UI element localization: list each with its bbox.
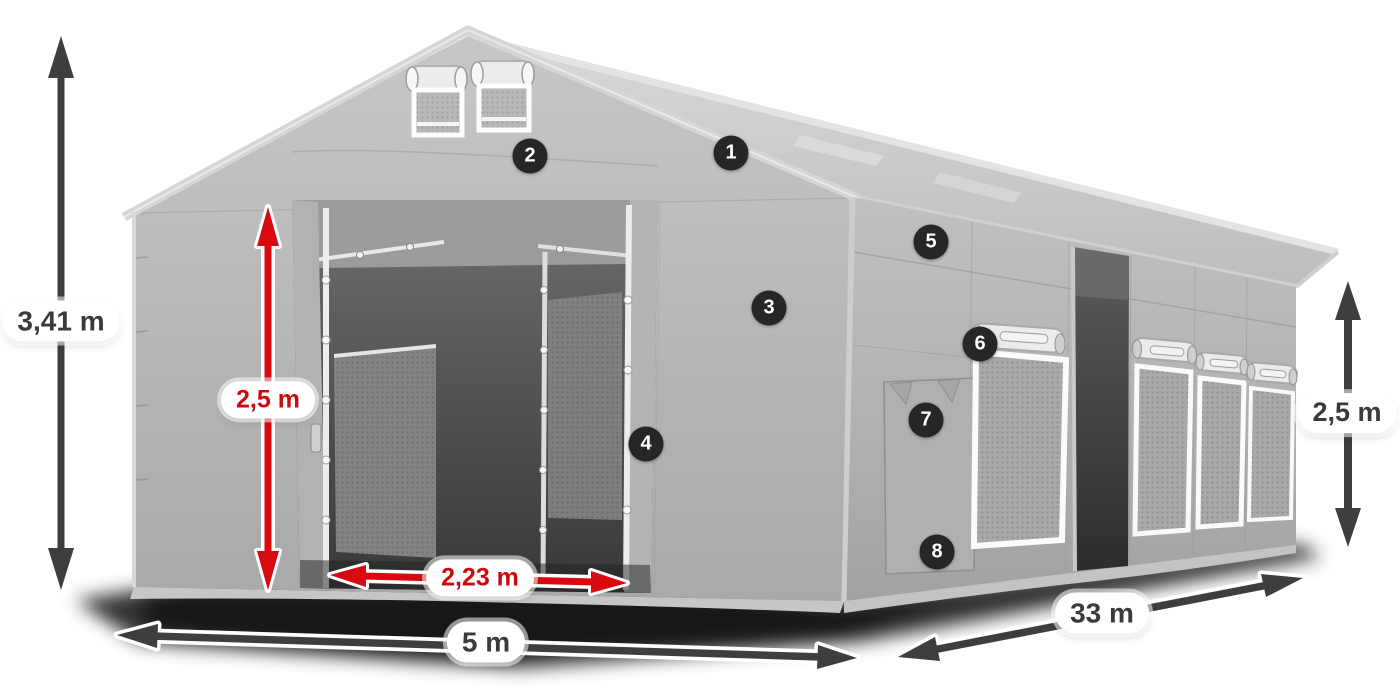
gable-vent-window [471, 61, 534, 130]
dimension-label-side-length: 33 m [1055, 593, 1149, 634]
marker-6: 6 [963, 327, 998, 362]
interior-mesh-panel [334, 346, 436, 558]
marker-1: 1 [714, 136, 749, 171]
gable-vent-window [406, 66, 467, 135]
interior-mesh-panel [548, 292, 622, 520]
dimension-label-side-wall-height: 2,5 m [1297, 393, 1396, 433]
marker-8: 8 [920, 535, 955, 570]
door-handle [311, 424, 321, 452]
dimension-label-door-width: 2,23 m [426, 559, 534, 596]
dimension-label-front-width: 5 m [447, 622, 525, 663]
marker-7: 7 [909, 403, 944, 438]
marker-3: 3 [752, 291, 787, 326]
interior-roof [292, 200, 658, 268]
tent-dimension-diagram: 3,41 m 2,5 m 2,23 m 5 m 33 m 2,5 m 1 2 3… [0, 0, 1400, 700]
marker-2: 2 [513, 139, 548, 174]
side-sliding-doorway [1073, 247, 1129, 571]
marker-5: 5 [914, 225, 949, 260]
dimension-label-total-height: 3,41 m [2, 301, 119, 342]
dimension-label-door-height: 2,5 m [221, 381, 315, 418]
front-door-opening [292, 200, 658, 593]
tent-illustration [0, 0, 1400, 700]
marker-4: 4 [629, 427, 664, 462]
